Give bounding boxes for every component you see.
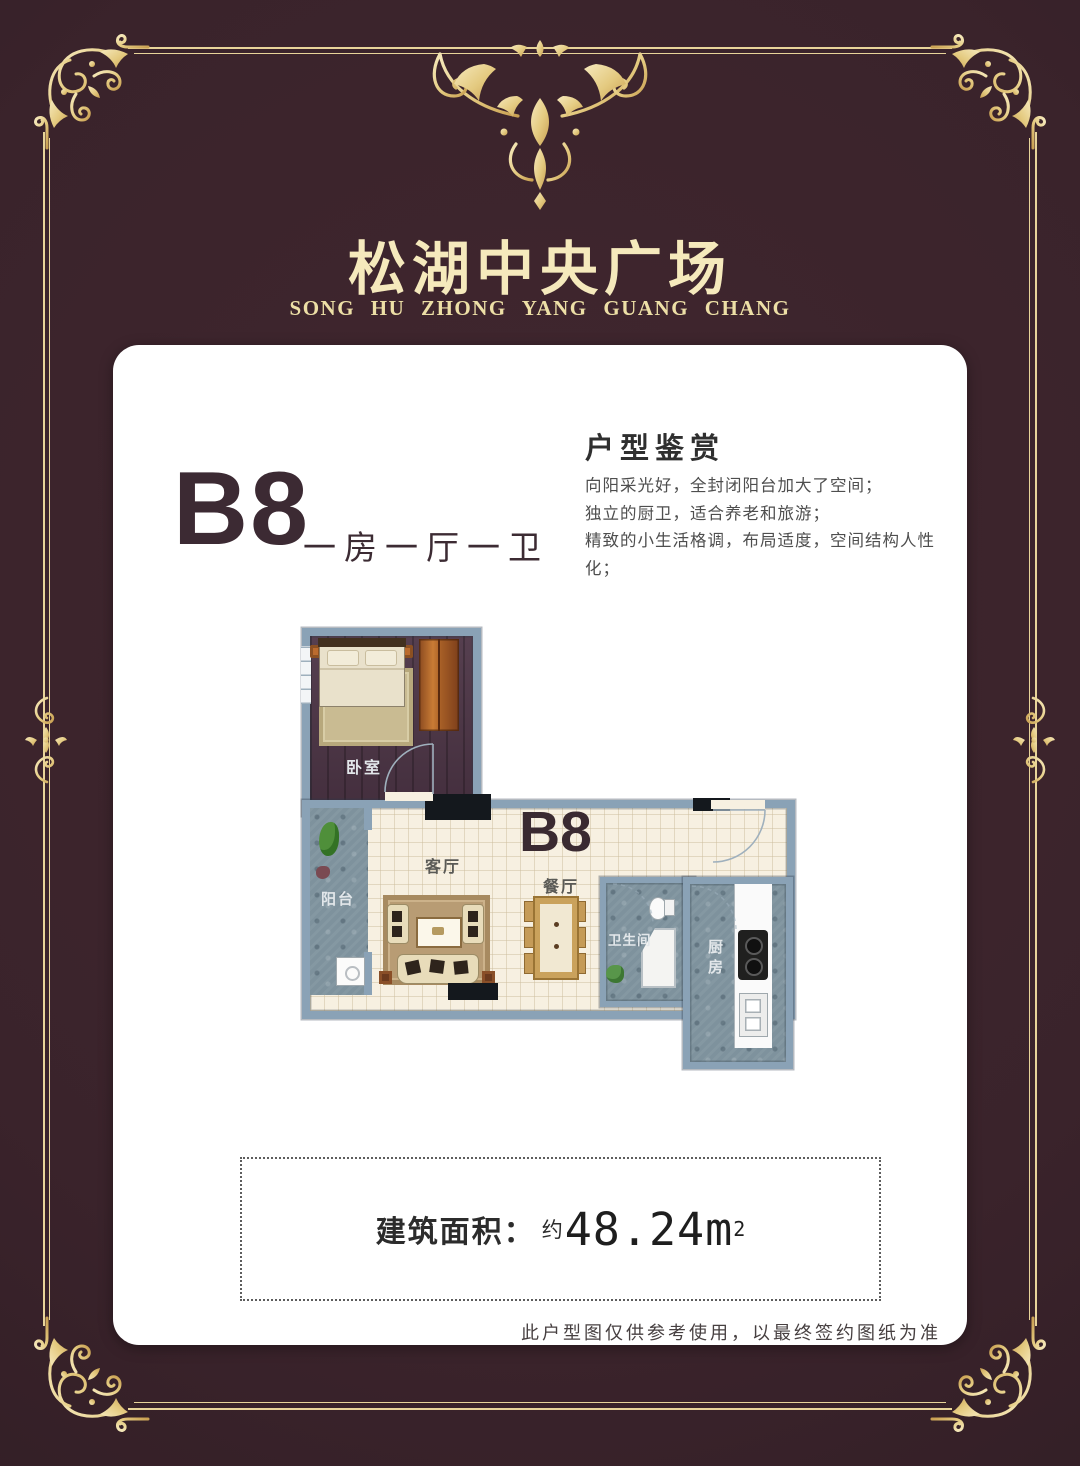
- sofa: [397, 954, 479, 984]
- bed-pillow: [365, 650, 397, 666]
- right-edge-ornament: [1012, 696, 1056, 784]
- top-center-ornament: [420, 40, 660, 210]
- balcony-label: 阳台: [321, 888, 355, 909]
- stove-burner: [745, 937, 763, 955]
- kitchen-room: 厨房: [683, 877, 793, 1069]
- area-value: 48.24m: [565, 1203, 734, 1256]
- disclaimer-text: 此户型图仅供参考使用，以最终签约图纸为准: [521, 1319, 941, 1345]
- stove-burner: [745, 958, 763, 976]
- poster-page: 松湖中央广场 SONG HU ZHONG YANG GUANG CHANG B8…: [0, 0, 1080, 1466]
- armchair-cushion: [468, 926, 478, 937]
- corner-flourish-top-right: [930, 30, 1050, 150]
- floorplan-drawing: 卧室 阳台: [297, 622, 789, 1068]
- washing-machine-door: [345, 966, 360, 981]
- bedroom-door-opening: [385, 792, 433, 801]
- armchair-right: [462, 904, 484, 944]
- bedroom-label: 卧室: [346, 754, 382, 778]
- wall-stub: [364, 952, 372, 995]
- left-edge-ornament: [24, 696, 68, 784]
- area-label: 建筑面积：: [376, 1207, 536, 1251]
- stove: [738, 930, 768, 980]
- frame-line-bottom-outer: [128, 1408, 952, 1410]
- entry-door-opening: [711, 800, 765, 809]
- armchair-left: [387, 904, 409, 944]
- coffee-table-decor: [432, 927, 444, 935]
- bedroom-room: 卧室: [302, 628, 481, 816]
- area-superscript: 2: [733, 1217, 745, 1241]
- wardrobe-seam: [438, 639, 440, 731]
- kitchen-label: 厨房: [704, 939, 725, 979]
- area-box: 建筑面积： 约 48.24m 2: [240, 1157, 881, 1301]
- bed-headboard: [318, 638, 406, 647]
- wardrobe: [419, 639, 459, 731]
- review-line: 向阳采光好，全封闭阳台加大了空间；: [585, 473, 967, 501]
- bathroom-room: 卫生间: [600, 877, 695, 1007]
- project-title: 松湖中央广场: [0, 222, 1080, 306]
- living-label: 客厅: [425, 853, 461, 877]
- dining-label: 餐厅: [543, 873, 579, 897]
- review-line: 精致的小生活格调，布局适度，空间结构人性化；: [585, 528, 967, 556]
- bed: [320, 640, 404, 706]
- review-line: 独立的厨卫，适合养老和旅游；: [585, 501, 967, 529]
- corner-flourish-top-left: [30, 30, 150, 150]
- toilet-tank: [665, 900, 674, 915]
- bed-blanket-fold: [320, 668, 404, 670]
- sofa-cushion: [405, 960, 421, 976]
- review-lines: 向阳采光好，全封闭阳台加大了空间； 独立的厨卫，适合养老和旅游； 精致的小生活格…: [585, 473, 967, 556]
- unit-layout-label: 一房一厅一卫: [303, 521, 549, 569]
- armchair-cushion: [468, 911, 478, 922]
- bathroom-plant: [606, 965, 624, 983]
- project-subtitle: SONG HU ZHONG YANG GUANG CHANG: [0, 296, 1080, 321]
- armchair-cushion: [392, 926, 402, 937]
- coffee-table: [416, 917, 462, 948]
- wall-column: [425, 794, 491, 820]
- sink-basin: [745, 1017, 761, 1031]
- armchair-cushion: [392, 911, 402, 922]
- dining-table: [533, 896, 579, 980]
- side-table-left: [379, 971, 392, 984]
- area-approx: 约: [542, 1214, 563, 1244]
- unit-code-heading: B8: [173, 457, 310, 561]
- wall-column: [448, 983, 498, 1000]
- bed-pillow: [327, 650, 359, 666]
- wall-stub: [364, 808, 372, 830]
- dining-table-runner: [540, 904, 572, 972]
- toilet: [650, 898, 666, 919]
- floorplan-card: B8 一房一厅一卫 户型鉴赏 向阳采光好，全封闭阳台加大了空间； 独立的厨卫，适…: [113, 345, 967, 1345]
- sofa-cushion: [453, 960, 468, 974]
- plan-unit-label: B8: [519, 804, 592, 861]
- washing-machine: [337, 958, 364, 985]
- review-heading: 户型鉴赏: [585, 425, 725, 467]
- sink-basin: [745, 999, 761, 1013]
- dining-table-decor: [554, 922, 559, 927]
- frame-line-bottom-inner: [134, 1402, 946, 1403]
- bathroom-label: 卫生间: [608, 929, 652, 949]
- sofa-cushion: [429, 959, 445, 974]
- kitchen-sink: [740, 994, 767, 1036]
